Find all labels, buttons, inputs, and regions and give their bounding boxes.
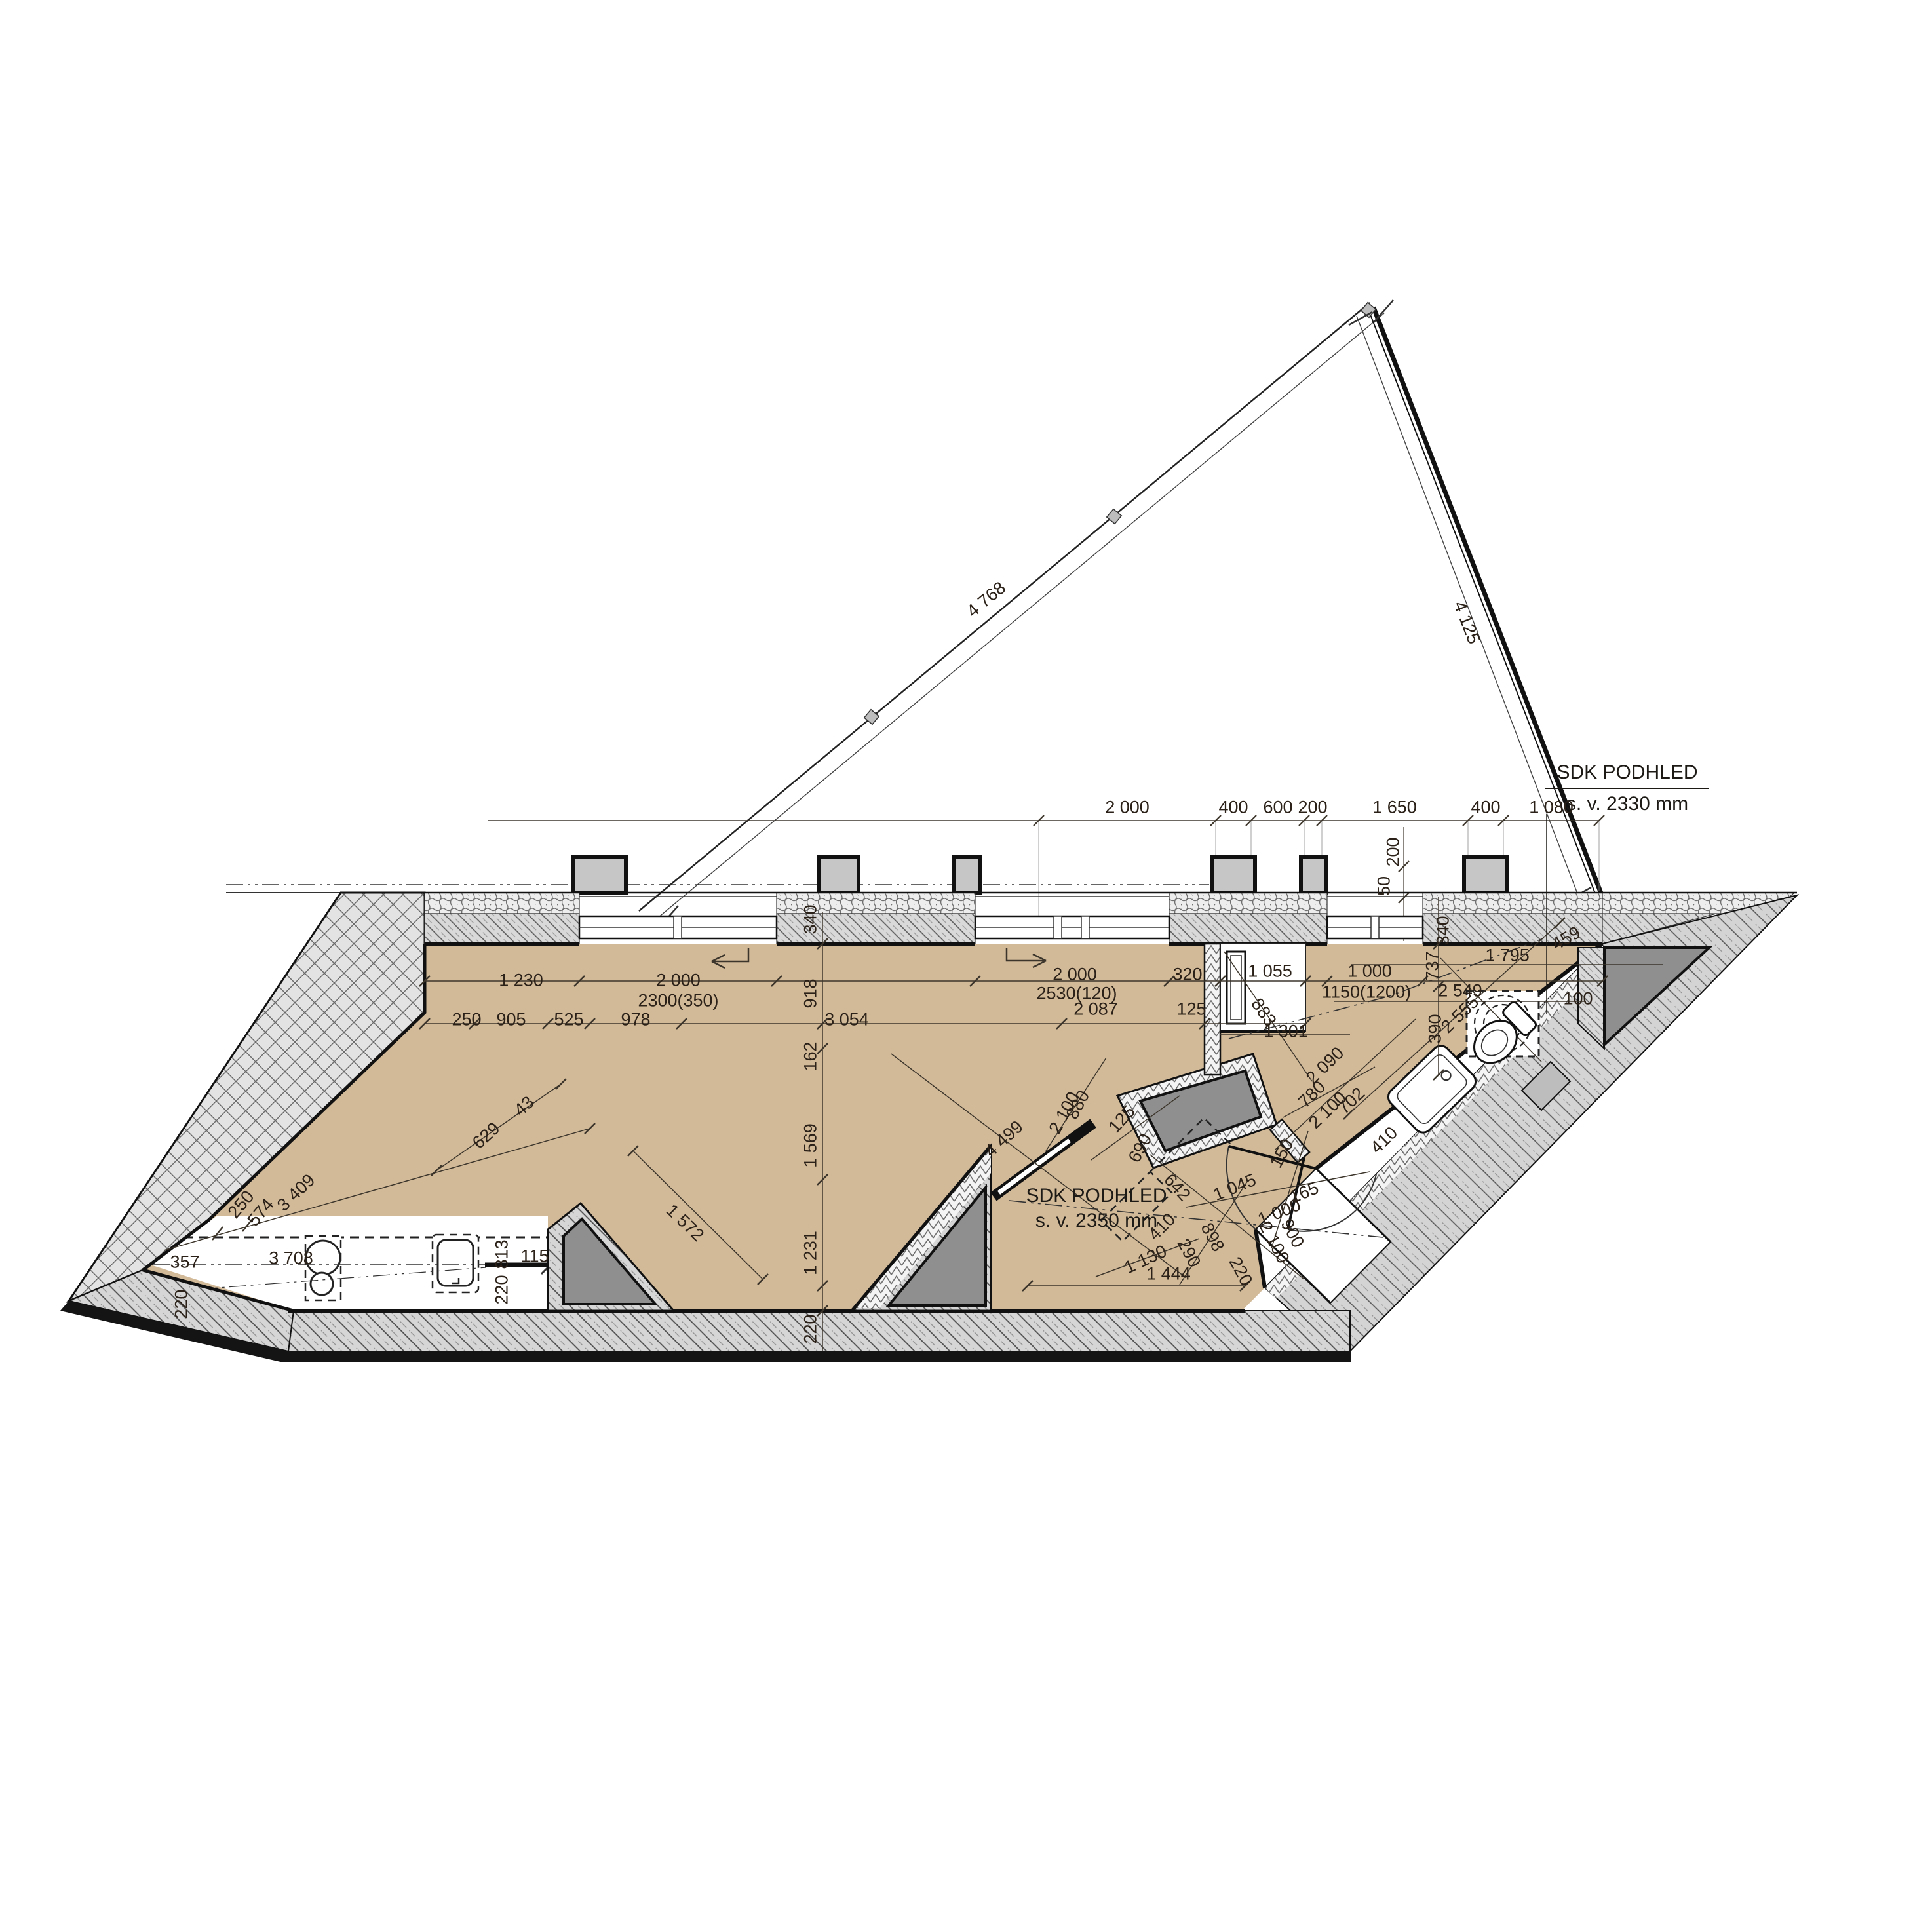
dimension-label: 162 — [802, 1041, 820, 1071]
dimension-label: 737 — [1424, 951, 1442, 980]
dimension-label: 2 000 — [1105, 799, 1150, 817]
dimension-label: 459 — [1549, 923, 1584, 954]
dimension-label: 220 — [493, 1275, 511, 1304]
dimension-label: 2 087 — [1073, 1001, 1118, 1018]
dimension-label: 1 795 — [1485, 947, 1530, 965]
dimension-label: 400 — [1218, 799, 1248, 817]
dimension-label: 200 — [1298, 799, 1327, 817]
dimension-label: 43 — [511, 1093, 537, 1119]
dimension-label: 918 — [802, 978, 820, 1008]
dimension-label: 4 499 — [982, 1117, 1026, 1160]
dimension-label: 115 — [520, 1248, 549, 1265]
dimension-label: 978 — [621, 1011, 650, 1029]
dimension-label: 200 — [1385, 837, 1402, 866]
dimension-label: 600 — [1263, 799, 1292, 817]
dimension-label: 400 — [1471, 799, 1500, 817]
dimension-label: 1150(1200) — [1322, 984, 1411, 1001]
dimension-label: 629 — [469, 1119, 503, 1152]
dimension-label: 2 000 — [656, 972, 701, 990]
dimension-label: 320 — [1172, 966, 1202, 984]
dimension-label: 50 — [1376, 876, 1393, 896]
dimension-label: 813 — [493, 1239, 511, 1269]
dimension-label: 2 090 — [1303, 1044, 1347, 1087]
dimension-label: 690 — [1126, 1131, 1155, 1165]
dimension-label: 898 — [1198, 1220, 1227, 1254]
dimension-label: 1 055 — [1248, 963, 1292, 980]
dimension-label: 3 054 — [824, 1011, 869, 1029]
dimension-label: 1 650 — [1372, 799, 1417, 817]
dimension-label: 340 — [802, 904, 820, 934]
dimension-label: 3 409 — [274, 1171, 318, 1214]
dimension-label: 1 230 — [499, 972, 543, 990]
dimension-label: 165 — [1287, 1179, 1321, 1207]
dimension-label: 1 045 — [1211, 1171, 1259, 1204]
dimension-label: 220 — [173, 1289, 191, 1319]
dimension-label: 220 — [802, 1314, 820, 1343]
dimension-label: 3 708 — [269, 1250, 313, 1267]
dimension-label: 642 — [1161, 1170, 1193, 1205]
dimension-label: 150 — [1267, 1136, 1297, 1170]
dimension-label: 125 — [1176, 1001, 1206, 1018]
dimension-label: 410 — [1146, 1210, 1179, 1244]
dimension-label: 1 080 — [1529, 799, 1574, 817]
floor-plan-canvas: SDK PODHLED s. v. 2330 mm SDK PODHLED s.… — [0, 0, 1932, 1932]
dimension-label: 1 231 — [802, 1231, 820, 1275]
dimension-label: 100 — [1563, 990, 1593, 1008]
dimension-label: 1 572 — [663, 1201, 706, 1245]
dimension-label: 1 444 — [1146, 1265, 1191, 1283]
dimension-label: 250 — [452, 1011, 481, 1029]
dimension-label: 2 549 — [1438, 982, 1482, 1000]
dimension-label: 220 — [1226, 1254, 1256, 1288]
dimension-label: 702 — [1334, 1085, 1368, 1118]
dimension-label: 340 — [1435, 916, 1452, 945]
dimension-label: 2 000 — [1053, 966, 1097, 984]
dimension-label: 4 125 — [1450, 599, 1482, 647]
dimension-label: 525 — [554, 1011, 583, 1029]
dimension-label: 1 000 — [1347, 963, 1392, 980]
dimension-label: 125 — [1106, 1102, 1138, 1136]
dimension-label: 410 — [1367, 1124, 1401, 1157]
dimension-label: 4 768 — [963, 579, 1009, 621]
dimension-label: 1 569 — [802, 1123, 820, 1168]
dimension-label: 905 — [496, 1011, 526, 1029]
dimension-label: 2300(350) — [638, 992, 718, 1010]
dimension-label: 357 — [170, 1254, 199, 1271]
dim-labels-layer: 4 7684 1252 0004006002001 6504001 080200… — [0, 0, 1932, 1932]
